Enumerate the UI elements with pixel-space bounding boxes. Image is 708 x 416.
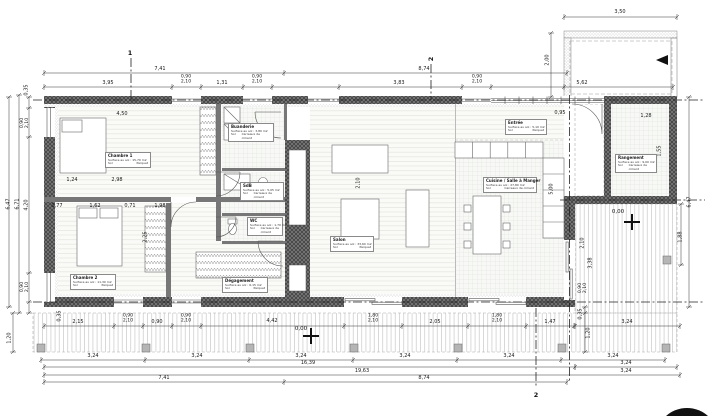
room-floor-key: Sol (618, 164, 623, 171)
room-floor-value: Parquet (136, 162, 148, 166)
room-label: DégagementSurface au sol : 6,15 m2SolPar… (222, 277, 268, 293)
dim-label: 2,05 (429, 320, 440, 325)
room-label: Chambre 2Surface au sol : 11,30 m2SolPar… (70, 274, 116, 290)
dim-label: 2,00 (546, 54, 551, 65)
logo-arc (657, 408, 708, 416)
room-floor-value: Parquet (253, 287, 265, 291)
dim-label: 2,98 (111, 178, 122, 183)
room-label: EntréeSurface au sol : 5,10 m2SolParquet (505, 119, 547, 135)
room-floor-value: Carreaux de ciment (504, 187, 534, 191)
room-floor: SolParquet (333, 246, 371, 250)
dim-label: 0,90 2,10 (21, 282, 31, 292)
dim-label: 1,20 (8, 332, 13, 343)
dim-label: 6,47 (688, 196, 693, 207)
room-label: Cuisine / Salle à MangerSurface au sol :… (483, 177, 537, 193)
dim-label: 4,20 (25, 199, 30, 210)
floor-plan-drawing (0, 0, 708, 416)
dim-label: 3,38 (589, 257, 594, 268)
dim-label: 5,62 (576, 81, 587, 86)
dim-label: 1,80 2,10 (492, 314, 502, 324)
room-floor: SolCarreaux de ciment (243, 192, 281, 199)
room-floor-key: Sol (225, 287, 230, 291)
dim-label: 8,74 (418, 67, 429, 72)
dim-label: 0,90 2,10 (21, 118, 31, 128)
room-label: WCSurface au sol : 1,70 m2SolCarreaux de… (247, 217, 283, 236)
room-floor: SolCarreaux de ciment (618, 164, 654, 171)
dim-label: 3,24 (607, 354, 618, 359)
dim-label: 3,83 (393, 81, 404, 86)
room-floor-key: Sol (243, 192, 248, 199)
dim-label: 16,39 (301, 361, 315, 366)
dim-label: 6,71 (16, 198, 21, 209)
dim-label: 7,41 (154, 67, 165, 72)
dim-label: 3,24 (191, 354, 202, 359)
dim-label: 1,20 (587, 327, 592, 338)
dim-label: 0,90 (151, 320, 162, 325)
dim-label: 3,50 (614, 10, 625, 15)
room-floor: SolCarreaux de ciment (231, 133, 271, 140)
room-floor: SolParquet (508, 129, 544, 133)
dim-label: 3,24 (503, 354, 514, 359)
dim-label: 0,90 2,10 (123, 314, 133, 324)
dim-label: 0,35 (25, 84, 30, 95)
dim-label: 4,42 (266, 319, 277, 324)
dim-label: 3,24 (87, 354, 98, 359)
room-floor-key: Sol (250, 227, 255, 234)
dim-label: 3,24 (295, 354, 306, 359)
dim-label: 7,41 (158, 376, 169, 381)
room-floor-key: Sol (508, 129, 513, 133)
floor-plan-sheet: 3,502,007,418,743,950,90 2,101,310,90 2,… (0, 0, 708, 416)
dim-label: 2,10 (581, 237, 586, 248)
dim-label: 1,28 (640, 114, 651, 119)
section-axis-label: 2 (534, 391, 539, 399)
room-floor-key: Sol (108, 162, 113, 166)
dim-label: 0,90 2,10 (181, 75, 191, 85)
room-floor-value: Carreaux de ciment (254, 192, 281, 199)
room-floor-value: Parquet (101, 284, 113, 288)
room-label: SdBSurface au sol : 5,05 m2SolCarreaux d… (240, 182, 284, 201)
room-floor-value: Parquet (359, 246, 371, 250)
dim-label: 1,62 (89, 204, 100, 209)
dim-label: 8,74 (418, 376, 429, 381)
section-axis-label: 1 (128, 49, 133, 57)
dim-label: 0,35 (579, 308, 584, 319)
room-floor-value: Carreaux de ciment (629, 164, 654, 171)
room-floor-key: Sol (486, 187, 491, 191)
entry-arrow-icon (656, 55, 668, 65)
dim-label: 0,95 (554, 111, 565, 116)
dim-label: 1,88 (679, 231, 684, 242)
dim-label: 0,71 (124, 204, 135, 209)
dim-label: 1,31 (216, 81, 227, 86)
room-floor: SolParquet (73, 284, 113, 288)
dim-label: 19,63 (355, 369, 369, 374)
dim-label: 3,24 (621, 320, 632, 325)
room-floor-value: Parquet (532, 129, 544, 133)
room-floor-key: Sol (73, 284, 78, 288)
dim-label: 1,80 2,10 (368, 314, 378, 324)
dim-label: 0,90 2,10 (579, 283, 589, 293)
room-floor-value: Carreaux de ciment (242, 133, 271, 140)
room-label: RangementSurface au sol : 9,00 m2SolCarr… (615, 154, 657, 173)
dim-label: 0,77 (51, 204, 62, 209)
dim-label: 2,10 (357, 177, 362, 188)
level-marker-label: 0,00 (295, 326, 307, 332)
room-floor-key: Sol (231, 133, 236, 140)
room-floor: SolParquet (225, 287, 265, 291)
level-marker-label: 0,00 (612, 209, 624, 215)
dim-label: 0,90 2,10 (252, 75, 262, 85)
dim-label: 2,15 (72, 320, 83, 325)
dim-label: 3,24 (620, 361, 631, 366)
room-label: SalonSurface au sol : 33,60 m2SolParquet (330, 236, 374, 252)
dim-label: 0,90 2,10 (181, 314, 191, 324)
section-axis-label: 2 (427, 57, 435, 62)
dim-label: 2,25 (144, 231, 149, 242)
dim-label: 6,47 (7, 198, 12, 209)
dim-label: 3,95 (102, 81, 113, 86)
room-label: Chambre 1Surface au sol : 15,70 m2SolPar… (105, 152, 151, 168)
dim-label: 3,24 (620, 369, 631, 374)
dim-label: 1,55 (658, 145, 663, 156)
room-floor: SolParquet (108, 162, 148, 166)
dim-label: 0,35 (58, 310, 63, 321)
room-floor-value: Carreaux de ciment (261, 227, 280, 234)
dim-label: 1,24 (66, 178, 77, 183)
room-floor: SolCarreaux de ciment (486, 187, 534, 191)
room-label: BuanderieSurface au sol : 3,80 m2SolCarr… (228, 123, 274, 142)
dim-label: 3,24 (399, 354, 410, 359)
dim-label: 4,50 (116, 112, 127, 117)
room-floor-key: Sol (333, 246, 338, 250)
chimney-block (284, 104, 310, 297)
dim-label: 0,90 2,10 (472, 75, 482, 85)
dim-label: 5,00 (550, 183, 555, 194)
room-floor: SolCarreaux de ciment (250, 227, 280, 234)
dim-label: 1,47 (544, 320, 555, 325)
dim-label: 1,98 (154, 204, 165, 209)
